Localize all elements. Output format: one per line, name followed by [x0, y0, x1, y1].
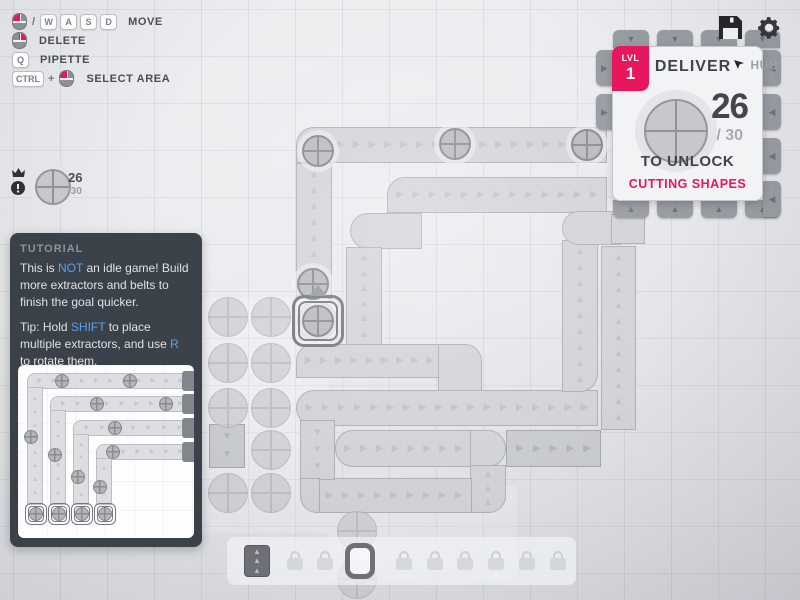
belt-arrow: ▶: [411, 356, 419, 366]
belt-arrow: ▶: [423, 444, 431, 454]
belt-arrow: ▲: [309, 234, 319, 244]
belt-arrow: ▶: [484, 403, 492, 413]
belt-arrow: ▶: [350, 356, 358, 366]
circle-shape-item: [302, 135, 334, 167]
lock-icon: [488, 551, 504, 571]
belt-arrow: ▶: [455, 444, 463, 454]
lock-icon: [317, 551, 333, 571]
belt-arrow: ▶: [541, 190, 549, 200]
extractor-inner-frame: [298, 301, 338, 341]
conveyor-belt: ▲▲▲: [470, 465, 506, 513]
move-label: MOVE: [128, 16, 163, 28]
belt-arrow: ▶: [360, 444, 368, 454]
belt-arrow: ▶: [337, 140, 345, 150]
belt-arrow: ▶: [445, 190, 453, 200]
level-label: LVL: [612, 54, 649, 63]
belt-arrow: ▶: [493, 190, 501, 200]
key-q: Q: [12, 52, 29, 68]
tutorial-hub-edge-block: [182, 394, 194, 414]
toolbar-slot-belt[interactable]: ▲▲▲: [242, 537, 272, 585]
hub-map-label: HUB: [751, 58, 779, 72]
tutorial-item-circle: [71, 470, 85, 484]
belt-arrow: ▶: [396, 190, 404, 200]
separator: /: [32, 16, 35, 28]
tutorial-item-circle: [93, 480, 107, 494]
toolbar-slot-lock[interactable]: [389, 537, 419, 585]
belt-arrow: ▶: [435, 403, 443, 413]
belt-arrow: ▶: [429, 190, 437, 200]
hub-acceptor-tab: ▲: [701, 200, 737, 218]
belt-arrow: ▶: [381, 356, 389, 366]
belt-arrow: ▲: [614, 333, 624, 343]
conveyor-belt: ▼▼: [209, 424, 245, 468]
tutorial-item-circle: [106, 445, 120, 459]
belt-arrow: ▲: [359, 253, 369, 263]
tutorial-panel: TUTORIAL This is NOT an idle game! Build…: [10, 233, 202, 547]
belt-arrow: ▶: [320, 356, 328, 366]
toolbar-slot-lock[interactable]: [450, 537, 480, 585]
belt-arrow: ▶: [406, 491, 414, 501]
lock-icon: [396, 551, 412, 571]
lock-icon: [550, 551, 566, 571]
lock-icon: [457, 551, 473, 571]
crown-icon: [12, 168, 25, 178]
belt-arrow: ▶: [532, 403, 540, 413]
belt-arrow: ▶: [511, 140, 519, 150]
belt-arrow: ▲: [614, 413, 624, 423]
belt-arrow: ▲: [359, 284, 369, 294]
belt-arrow: ▶: [322, 403, 330, 413]
belt-arrow: ▶: [396, 356, 404, 366]
belt-arrow: ▶: [479, 140, 487, 150]
conveyor-belt: ▲▲▲▲▲▲▲▲▲▲▲: [601, 246, 636, 430]
belt-arrow: ▶: [467, 403, 475, 413]
pinned-current: 26: [68, 170, 82, 185]
extractor-building[interactable]: [292, 295, 344, 347]
toolbar-slot-lock[interactable]: [543, 537, 573, 585]
belt-arrow: ▲: [575, 263, 585, 273]
circle-shape-item: [439, 128, 471, 160]
belt-arrow: ▶: [543, 140, 551, 150]
deliver-title: DELIVER: [653, 58, 733, 76]
resource-deposit-circle: [251, 343, 291, 383]
tutorial-belt-horizontal: ▶▶▶▶▶▶▶▶▶▶▶: [27, 373, 194, 389]
keybind-pipette: Q PIPETTE: [12, 50, 170, 69]
delete-label: DELETE: [39, 35, 86, 47]
belt-arrow: ▶: [525, 190, 533, 200]
pipette-label: PIPETTE: [40, 54, 90, 66]
belt-arrow: ▶: [527, 140, 535, 150]
belt-arrow: ▶: [548, 403, 556, 413]
tutorial-item-circle: [24, 430, 38, 444]
belt-arrow: ▶: [564, 403, 572, 413]
tutorial-item-circle: [98, 507, 112, 521]
hub-panel[interactable]: LVL 1 DELIVER HUB 26 / 30 TO UNLOCK CUTT…: [612, 46, 763, 201]
belt-arrow: ▲: [309, 218, 319, 228]
belt-arrow: ▼: [313, 428, 323, 438]
belt-arrow: ▶: [516, 444, 524, 454]
belt-arrow: ▶: [416, 140, 424, 150]
belt-arrow: ▶: [451, 403, 459, 413]
belt-arrow: ▲: [614, 317, 624, 327]
belt-arrow: ▲: [614, 397, 624, 407]
tutorial-belt-vertical: ▲▲▲▲▲▲▲▲: [27, 387, 43, 505]
belt-arrow: ▲: [575, 375, 585, 385]
lock-icon: [427, 551, 443, 571]
belt-arrow: ▶: [408, 444, 416, 454]
belt-arrow: ▲: [359, 330, 369, 340]
belt-arrow: ▲: [614, 365, 624, 375]
hub-acceptor-tab: ▲: [613, 200, 649, 218]
belt-icon: ▲▲▲: [244, 545, 270, 577]
belt-arrow: ▶: [365, 356, 373, 366]
belt-arrow: ▶: [516, 403, 524, 413]
tutorial-paragraph-2: Tip: Hold SHIFT to place multiple extrac…: [20, 319, 192, 370]
belt-arrow: ▶: [533, 444, 541, 454]
belt-arrow: ▶: [509, 190, 517, 200]
tutorial-title: TUTORIAL: [20, 243, 192, 255]
game-viewport: ▶▶▶▶▶▶▶▶▶▶▶▶▶▶▶▶▶▶▶▲▲▲▲▲▲▲▲▶▶▶▶▶▶▶▶▶▶▶▶▶…: [0, 0, 800, 600]
belt-arrow: ▲: [614, 285, 624, 295]
conveyor-belt: ▶▶▶▶▶: [506, 430, 601, 467]
save-icon[interactable]: [717, 14, 744, 41]
belt-arrow: ▶: [419, 403, 427, 413]
toolbar-slot-lock[interactable]: [420, 537, 450, 585]
level-number: 1: [612, 65, 649, 82]
belt-arrow: ▶: [354, 403, 362, 413]
tutorial-hub-edge-block: [182, 442, 194, 462]
belt-arrow: ▶: [368, 140, 376, 150]
belt-arrow: ▼: [222, 432, 232, 442]
building-toolbar: ▲▲▲: [227, 537, 576, 585]
tutorial-image: ▶▶▶▶▶▶▶▶▶▶▶▲▲▲▲▲▲▲▲▶▶▶▶▶▶▶▶▶▲▲▲▲▲▲▶▶▶▶▶▶…: [18, 365, 194, 538]
belt-arrow: ▶: [370, 403, 378, 413]
belt-arrow: ▶: [335, 356, 343, 366]
mouse-right-icon: [12, 32, 27, 49]
keybind-select-area: CTRL + SELECT AREA: [12, 69, 170, 88]
extractor-icon: [345, 543, 375, 579]
belt-arrow: ▶: [477, 190, 485, 200]
belt-arrow: ▲: [359, 299, 369, 309]
tutorial-item-circle: [55, 374, 69, 388]
tutorial-item-circle: [52, 507, 66, 521]
tutorial-hub-edge-block: [182, 418, 194, 438]
hub-acceptor-tab: ▲: [657, 200, 693, 218]
belt-arrow: ▲: [309, 250, 319, 260]
toolbar-slot-lock[interactable]: [280, 537, 310, 585]
belt-arrow: ▼: [313, 462, 323, 472]
tutorial-hub-edge-block: [182, 371, 194, 391]
belt-arrow: ▲: [309, 202, 319, 212]
belt-arrow: ▲: [309, 186, 319, 196]
tutorial-item-circle: [48, 448, 62, 462]
belt-arrow: ▶: [590, 190, 598, 200]
belt-arrow: ▲: [483, 484, 493, 494]
resource-deposit-circle: [251, 430, 291, 470]
hub-acceptor-tab: ▶: [596, 94, 613, 130]
mouse-left-icon: [12, 13, 27, 30]
toolbar-slot-lock[interactable]: [481, 537, 511, 585]
goal-amount: / 30: [716, 127, 743, 145]
belt-arrow: ▶: [386, 403, 394, 413]
resource-deposit-circle: [208, 297, 248, 337]
conveyor-belt: ▶▶▶▶▶▶▶▶▶▶▶▶▶: [387, 177, 607, 213]
belt-arrow: ▲: [614, 253, 624, 263]
belt-arrow: ▶: [384, 140, 392, 150]
belt-arrow: ▶: [305, 356, 313, 366]
key-d: D: [100, 14, 117, 30]
belt-arrow: ▶: [574, 190, 582, 200]
reward-name: CUTTING SHAPES: [613, 177, 762, 191]
belt-arrow: ▶: [455, 491, 463, 501]
belt-arrow: ▶: [338, 403, 346, 413]
tutorial-item-circle: [159, 397, 173, 411]
belt-arrow: ▲: [614, 301, 624, 311]
belt-arrow: ▶: [495, 140, 503, 150]
belt-arrow: ▶: [413, 190, 421, 200]
hub-acceptor-tab: ◀: [763, 94, 781, 130]
belt-arrow: ▲: [575, 327, 585, 337]
conveyor-belt: ▶▶▶▶▶▶▶▶▶: [316, 478, 472, 513]
belt-arrow: ▲: [575, 343, 585, 353]
belt-arrow: ▲: [575, 295, 585, 305]
select-area-label: SELECT AREA: [86, 73, 170, 85]
resource-deposit-circle: [208, 473, 248, 513]
tutorial-item-circle: [29, 507, 43, 521]
delivered-amount: 26: [711, 87, 748, 127]
hub-acceptor-tab: ◀: [763, 138, 781, 174]
resource-deposit-circle: [208, 343, 248, 383]
resource-deposit-circle: [251, 388, 291, 428]
belt-arrow: ▶: [358, 491, 366, 501]
circle-shape-item: [571, 129, 603, 161]
belt-arrow: ▶: [461, 190, 469, 200]
toolbar-slot-extractor-selected[interactable]: [345, 537, 375, 585]
hub-acceptor-tab: ◀: [763, 181, 781, 217]
belt-arrow: ▶: [344, 444, 352, 454]
belt-arrow: ▲: [575, 279, 585, 289]
belt-arrow: ▶: [558, 140, 566, 150]
belt-arrow: ▲: [483, 470, 493, 480]
resource-deposit-circle: [251, 473, 291, 513]
hub-acceptor-tab: ▶: [596, 50, 613, 86]
tutorial-item-circle: [123, 374, 137, 388]
conveyor-belt: [470, 430, 506, 467]
pinned-goal[interactable]: 26 /30: [8, 165, 118, 209]
belt-arrow: ▶: [422, 491, 430, 501]
belt-arrow: ▶: [500, 403, 508, 413]
belt-arrow: ▲: [614, 349, 624, 359]
belt-arrow: ▶: [392, 444, 400, 454]
unlock-line: TO UNLOCK: [613, 153, 762, 170]
resource-deposit-circle: [208, 388, 248, 428]
belt-arrow: ▲: [359, 269, 369, 279]
tutorial-item-circle: [75, 507, 89, 521]
key-s: S: [80, 14, 97, 30]
key-w: W: [40, 14, 57, 30]
belt-arrow: ▶: [426, 356, 434, 366]
mouse-left-icon: [59, 70, 74, 87]
tutorial-paragraph-1: This is NOT an idle game! Build more ext…: [20, 260, 192, 311]
keybind-delete: DELETE: [12, 31, 170, 50]
belt-arrow: ▶: [581, 403, 589, 413]
key-a: A: [60, 14, 77, 30]
conveyor-belt: [350, 213, 422, 249]
conveyor-belt: ▲▲▲▲▲▲▲▲▲: [562, 240, 598, 392]
belt-arrow: ▲: [359, 314, 369, 324]
info-icon: [11, 181, 25, 195]
belt-arrow: ▶: [400, 140, 408, 150]
level-badge: LVL 1: [612, 46, 649, 91]
resource-deposit-circle: [251, 297, 291, 337]
keybind-move: / W A S D MOVE: [12, 12, 170, 31]
belt-arrow: ▶: [325, 491, 333, 501]
belt-arrow: ▲: [309, 170, 319, 180]
gear-icon[interactable]: [756, 15, 782, 41]
belt-arrow: ▶: [558, 190, 566, 200]
belt-arrow: ▶: [566, 444, 574, 454]
belt-arrow: ▲: [575, 247, 585, 257]
belt-arrow: ▶: [376, 444, 384, 454]
belt-arrow: ▶: [342, 491, 350, 501]
toolbar-slot-lock[interactable]: [512, 537, 542, 585]
tutorial-item-circle: [108, 421, 122, 435]
belt-arrow: ▲: [575, 359, 585, 369]
tutorial-item-circle: [90, 397, 104, 411]
belt-arrow: ▶: [439, 444, 447, 454]
lock-icon: [519, 551, 535, 571]
conveyor-belt: ▶▶▶▶▶▶▶▶: [335, 430, 472, 467]
conveyor-belt: ▶▶▶▶▶▶▶▶▶▶▶▶▶▶▶▶▶▶: [296, 390, 598, 426]
conveyor-belt: ▲▲▲▲▲▲: [346, 247, 382, 346]
belt-arrow: ▶: [583, 444, 591, 454]
belt-arrow: ▼: [222, 450, 232, 460]
belt-arrow: ▶: [439, 491, 447, 501]
belt-arrow: ▲: [614, 269, 624, 279]
belt-arrow: ▶: [305, 403, 313, 413]
toolbar-slot-lock[interactable]: [310, 537, 340, 585]
belt-arrow: ▲: [614, 381, 624, 391]
belt-arrow: ▼: [313, 445, 323, 455]
belt-arrow: ▲: [483, 498, 493, 508]
circle-shape-icon: [35, 169, 71, 205]
belt-arrow: ▲: [575, 311, 585, 321]
conveyor-belt: [611, 214, 645, 244]
key-ctrl: CTRL: [12, 71, 44, 87]
tutorial-belt-horizontal: ▶▶▶▶▶▶▶: [73, 420, 194, 436]
conveyor-belt: ▼▼▼: [300, 420, 335, 480]
extractor-output-arrow: [309, 285, 327, 296]
belt-arrow: ▶: [403, 403, 411, 413]
belt-arrow: ▶: [374, 491, 382, 501]
belt-arrow: ▶: [353, 140, 361, 150]
conveyor-belt: ▶▶▶▶▶▶▶▶▶▶: [296, 344, 458, 378]
pin-icon[interactable]: [734, 59, 744, 69]
belt-arrow: ▶: [390, 491, 398, 501]
plus-sign: +: [48, 73, 54, 85]
pinned-total: /30: [68, 186, 82, 197]
keybind-hints: / W A S D MOVE DELETE Q PIPETTE CTRL + S…: [12, 12, 170, 88]
belt-arrow: ▶: [550, 444, 558, 454]
lock-icon: [287, 551, 303, 571]
